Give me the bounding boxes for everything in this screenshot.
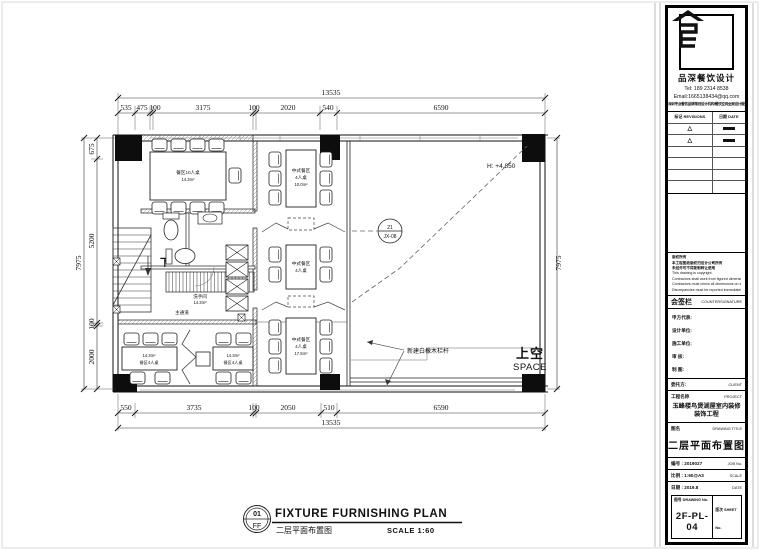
svg-text:510: 510 bbox=[323, 403, 335, 412]
mid1-label: 中式餐区 bbox=[292, 167, 311, 174]
signature-fields: 甲方代表: 设计单位: 施工单位: 审 核: 制 图: bbox=[668, 309, 745, 378]
svg-text:475: 475 bbox=[136, 103, 148, 112]
svg-text:3175: 3175 bbox=[196, 103, 211, 112]
svg-text:6590: 6590 bbox=[434, 103, 449, 112]
client-label-en: CLIENT bbox=[728, 383, 742, 387]
wc-fixtures bbox=[163, 212, 254, 311]
date-en: DATE bbox=[732, 486, 742, 490]
brand-tagline: 深圳专业餐饮品牌策划设计机构/餐饮空间全案设计服务商 bbox=[668, 101, 745, 108]
drawing-label-cn: 图名 bbox=[671, 426, 680, 432]
drawing-no: 2F-PL-04 bbox=[674, 511, 710, 533]
brand-email: Email:1665138434@qq.com bbox=[668, 93, 745, 101]
scale-value: 比例 : 1:60@A3 bbox=[671, 473, 704, 479]
mid3-area: 17.5m² bbox=[294, 351, 308, 356]
dimension-text-bottom: 550 3735 100 2050 510 6590 13535 bbox=[120, 403, 448, 427]
svg-text:6590: 6590 bbox=[434, 403, 449, 412]
view-title-cn: 二层平面布置图 bbox=[276, 525, 332, 535]
drawing-no-label: 图号 DRAWING No. bbox=[674, 498, 710, 503]
wc-label: 洗手间 bbox=[193, 293, 207, 300]
revision-row-empty bbox=[668, 170, 745, 182]
logo-box bbox=[679, 14, 734, 70]
low1-area: 14.3m² bbox=[142, 353, 156, 358]
revision-row: △ bbox=[668, 135, 745, 147]
sheet-frame bbox=[2, 2, 758, 548]
mid-dining-group-2 bbox=[269, 245, 332, 289]
project-label-row: 工程名称 PROJECT bbox=[668, 390, 745, 402]
revision-date-mark bbox=[723, 139, 735, 142]
svg-text:5200: 5200 bbox=[87, 233, 96, 248]
low-dining-group-1 bbox=[122, 333, 177, 384]
field-row: 制 图: bbox=[672, 363, 741, 376]
svg-text:550: 550 bbox=[120, 403, 132, 412]
partition-2 bbox=[262, 296, 345, 310]
mid1-area: 10.0m² bbox=[294, 182, 308, 187]
revision-row: △ bbox=[668, 124, 745, 136]
revision-col-mark: 标记 REVISIONS bbox=[668, 112, 713, 123]
dimension-text-top: 535 475 100 3175 100 2020 540 6590 13535 bbox=[120, 88, 448, 112]
view-title-scale: SCALE 1:60 bbox=[387, 526, 435, 535]
countersign-en: COUNTERSIGNATURE bbox=[701, 300, 742, 304]
drawing-label-en: DRAWING TITLE bbox=[712, 427, 742, 431]
svg-text:540: 540 bbox=[322, 103, 334, 112]
mid2-label: 中式餐区 bbox=[292, 260, 311, 267]
date-value: 日期 : 2019.8 bbox=[671, 485, 698, 491]
stair bbox=[113, 228, 151, 312]
low-dining-group-2 bbox=[213, 333, 253, 384]
svg-text:100: 100 bbox=[248, 403, 260, 412]
dimension-text-right: 7975 bbox=[554, 255, 563, 270]
drawing-sheet: 下 餐区10人桌 14.3m² 洗手间 14.3m² 主通道 中式餐区 4人桌 … bbox=[0, 0, 760, 550]
drawing-number-box: 图号 DRAWING No. 2F-PL-04 版次 SHEET No. bbox=[671, 495, 742, 539]
title-block-spacer bbox=[668, 194, 745, 253]
svg-text:2050: 2050 bbox=[281, 403, 296, 412]
revision-row-empty bbox=[668, 158, 745, 170]
project-label-cn: 工程名称 bbox=[671, 394, 689, 400]
field-row: 审 核: bbox=[672, 350, 741, 363]
view-title: 01 FF FIXTURE FURNISHING PLAN 二层平面布置图 SC… bbox=[244, 506, 463, 536]
private-room-furniture bbox=[150, 139, 241, 214]
partition-1 bbox=[262, 218, 345, 232]
revision-row-empty bbox=[668, 181, 745, 193]
client-row: 委托方: CLIENT bbox=[668, 378, 745, 390]
detail-tag-number: 21 bbox=[387, 225, 393, 231]
job-no: 编号 : 2019027 bbox=[671, 461, 702, 467]
svg-text:100: 100 bbox=[87, 318, 96, 330]
sheet-no-label: 版次 SHEET No. bbox=[715, 508, 736, 530]
svg-text:535: 535 bbox=[120, 103, 132, 112]
wc-area: 14.3m² bbox=[193, 300, 207, 305]
railing-note-text: 新建白橡木栏杆 bbox=[407, 347, 449, 355]
svg-text:2020: 2020 bbox=[281, 103, 296, 112]
view-sheet-ref: FF bbox=[253, 523, 262, 530]
note-line: Contractors must check all dimensions on… bbox=[672, 282, 741, 287]
mid1-seats: 4人桌 bbox=[295, 174, 307, 181]
svg-text:2000: 2000 bbox=[87, 349, 96, 364]
revision-mark: △ bbox=[668, 135, 713, 146]
drawing-label-row: 图名 DRAWING TITLE bbox=[668, 422, 745, 434]
revision-table: 标记 REVISIONS 日期 DATE △ △ bbox=[668, 111, 745, 194]
title-block: 品深餐饮设计 Tel: 189 2314 8538 Email:16651384… bbox=[665, 5, 748, 545]
low-divider bbox=[182, 330, 210, 384]
project-label-en: PROJECT bbox=[724, 395, 742, 399]
revision-mark: △ bbox=[668, 124, 713, 135]
field-row: 施工单位: bbox=[672, 337, 741, 350]
void-annotations: 21 JX-08 H: +4.850 上空 SPACE bbox=[352, 146, 547, 373]
field-row: 设计单位: bbox=[672, 324, 741, 337]
view-number: 01 bbox=[253, 511, 261, 518]
revision-row-empty bbox=[668, 147, 745, 159]
svg-text:7975: 7975 bbox=[74, 255, 83, 270]
copyright-notes: 版权所有 本工程图纸版权归设计公司所有 未经许可不得复制转让使用 This dr… bbox=[668, 252, 745, 295]
private-room-area: 14.3m² bbox=[181, 177, 195, 182]
svg-text:675: 675 bbox=[87, 143, 96, 155]
low1-label: 餐区4人桌 bbox=[139, 359, 159, 366]
svg-text:13535: 13535 bbox=[322, 418, 341, 427]
void-label-cn: 上空 bbox=[516, 346, 544, 361]
corridor-label: 主通道 bbox=[175, 309, 189, 316]
date-row: 日期 : 2019.8 DATE bbox=[668, 481, 745, 493]
countersignature-header: 会签栏 COUNTERSIGNATURE bbox=[668, 295, 745, 309]
project-name: 玉峰楼鸟煲湖屋室内装修装饰工程 bbox=[668, 402, 745, 422]
scale-en: SCALE bbox=[730, 474, 742, 478]
low2-area: 14.3m² bbox=[226, 353, 240, 358]
job-no-en: JOB No. bbox=[728, 462, 742, 466]
view-title-en: FIXTURE FURNISHING PLAN bbox=[275, 508, 447, 520]
revision-date-mark bbox=[723, 127, 735, 130]
dimensions-top bbox=[115, 93, 548, 135]
revision-header-row: 标记 REVISIONS 日期 DATE bbox=[668, 112, 745, 124]
svg-text:100: 100 bbox=[248, 103, 260, 112]
field-row: 甲方代表: bbox=[672, 311, 741, 324]
private-room-label: 餐区10人桌 bbox=[176, 169, 200, 176]
svg-text:3735: 3735 bbox=[187, 403, 202, 412]
floor-plan-canvas: 下 餐区10人桌 14.3m² 洗手间 14.3m² 主通道 中式餐区 4人桌 … bbox=[0, 0, 760, 550]
scale-row: 比例 : 1:60@A3 SCALE bbox=[668, 469, 745, 481]
brand-name: 品深餐饮设计 bbox=[668, 72, 745, 85]
drawing-title: 二层平面布置图 bbox=[668, 434, 745, 457]
job-row: 编号 : 2019027 JOB No. bbox=[668, 457, 745, 469]
svg-text:100: 100 bbox=[149, 103, 161, 112]
detail-tag-sheet: JX-08 bbox=[383, 234, 396, 240]
note-line: Discrepancies must be reported immediate… bbox=[672, 288, 741, 293]
mid2-seats: 4人桌 bbox=[295, 267, 307, 274]
client-label-cn: 委托方: bbox=[671, 382, 686, 388]
brand-tel: Tel: 189 2314 8538 bbox=[668, 85, 745, 93]
mid3-label: 中式餐区 bbox=[292, 336, 311, 343]
void-label-en: SPACE bbox=[513, 362, 547, 373]
revision-col-date: 日期 DATE bbox=[713, 112, 745, 123]
dimension-text-left: 675 5200 100 2000 7975 bbox=[74, 143, 96, 364]
height-label: H: +4.850 bbox=[487, 163, 516, 170]
mid3-seats: 4人桌 bbox=[295, 343, 307, 350]
low2-label: 餐区4人桌 bbox=[223, 359, 243, 366]
svg-text:13535: 13535 bbox=[322, 88, 341, 97]
countersign-cn: 会签栏 bbox=[671, 297, 692, 307]
brand-logo-icon bbox=[668, 8, 708, 52]
